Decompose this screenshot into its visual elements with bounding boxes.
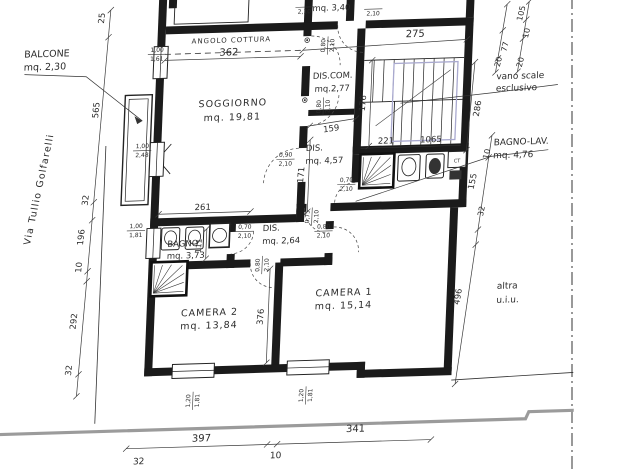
svg-text:0,90: 0,90	[279, 152, 293, 159]
svg-text:esclusivo: esclusivo	[496, 83, 538, 94]
svg-text:171: 171	[296, 167, 307, 183]
dim-10-left: 10	[74, 262, 85, 273]
dim-376: 376	[255, 309, 266, 325]
svg-text:mq. 4,57: mq. 4,57	[305, 156, 343, 167]
svg-text:mq. 19,81: mq. 19,81	[203, 111, 261, 124]
svg-text:565: 565	[91, 102, 103, 119]
label-vano-scale-esclusivo: vano scaleesclusivo	[496, 71, 545, 94]
washbasin-icon	[397, 155, 420, 182]
svg-text:DIS.: DIS.	[263, 224, 281, 235]
dim-292: 292	[69, 313, 81, 330]
svg-text:CAMERA 1: CAMERA 1	[315, 287, 372, 300]
svg-text:0,70: 0,70	[340, 177, 354, 184]
svg-text:196: 196	[76, 229, 88, 246]
dim-176: 176	[358, 95, 369, 111]
dim-77: 77	[499, 41, 510, 53]
svg-text:0,75: 0,75	[304, 210, 312, 224]
svg-text:2,10: 2,10	[339, 186, 353, 193]
fixtures-bagno-lav	[397, 151, 466, 181]
svg-text:CAMERA 2: CAMERA 2	[181, 307, 238, 320]
dim-10-bottom: 10	[270, 451, 282, 461]
svg-text:25: 25	[97, 13, 108, 24]
svg-text:mq.2,77: mq.2,77	[314, 84, 350, 95]
dim-10-topright: 10	[521, 27, 532, 39]
upper-room-outline	[174, 0, 249, 24]
svg-text:1065: 1065	[420, 135, 442, 146]
label-bagno-lav: BAGNO-LAV.mq. 4,76	[493, 137, 549, 162]
dim-32-left-lower: 32	[64, 365, 75, 376]
lot-line-southeast	[451, 372, 573, 380]
svg-text:BALCONE: BALCONE	[24, 48, 70, 60]
svg-text:10: 10	[74, 262, 85, 273]
svg-text:2,10: 2,10	[298, 8, 312, 15]
svg-text:20: 20	[515, 56, 526, 68]
svg-text:mq. 2,30: mq. 2,30	[23, 61, 66, 73]
leader-balcone	[22, 71, 144, 125]
svg-text:2,48: 2,48	[135, 152, 149, 159]
dim-362: 362	[219, 47, 238, 59]
svg-text:397: 397	[192, 433, 211, 445]
svg-text:221: 221	[378, 136, 395, 146]
svg-text:261: 261	[194, 203, 211, 213]
dim-275: 275	[405, 29, 424, 41]
label-balcone: BALCONEmq. 2,30	[23, 48, 69, 73]
dim-171: 171	[296, 167, 307, 183]
svg-text:341: 341	[346, 424, 365, 436]
dim-32-right: 32	[476, 205, 487, 216]
opening-210-a: 2,10	[295, 7, 314, 16]
dim-341: 341	[346, 424, 365, 436]
svg-text:DIS.: DIS.	[306, 143, 324, 154]
svg-text:10: 10	[481, 148, 492, 160]
svg-text:286: 286	[472, 100, 485, 117]
floor-plan-page: BALCONEmq. 2,30Via Tullio Golfarelli2556…	[0, 0, 620, 473]
svg-text:2,10: 2,10	[238, 233, 252, 240]
svg-text:CT: CT	[454, 158, 462, 164]
svg-text:32: 32	[81, 195, 92, 206]
svg-text:1,81: 1,81	[194, 394, 202, 408]
svg-text:0,80: 0,80	[254, 258, 262, 272]
svg-text:altra: altra	[497, 281, 518, 292]
window-camera1	[287, 360, 330, 375]
svg-text:Via Tullio Golfarelli: Via Tullio Golfarelli	[22, 133, 57, 246]
svg-text:u.i.u.: u.i.u.	[496, 295, 519, 306]
svg-text:362: 362	[219, 47, 238, 59]
svg-text:vano scale: vano scale	[496, 71, 545, 82]
opening-210-b: 2,10	[364, 9, 383, 18]
svg-text:2,10: 2,10	[366, 10, 380, 17]
dim-10-right: 10	[481, 148, 492, 160]
svg-text:1,20: 1,20	[298, 389, 306, 403]
dim-32-bottom: 32	[133, 457, 145, 467]
svg-text:32: 32	[133, 457, 145, 467]
svg-text:mq. 15,14: mq. 15,14	[315, 300, 373, 313]
svg-text:105: 105	[515, 5, 527, 22]
window-balcony-door	[149, 142, 164, 176]
dim-496: 496	[452, 288, 465, 305]
svg-text:176: 176	[358, 95, 369, 111]
svg-text:496: 496	[452, 288, 465, 305]
street-edge-gray-line	[0, 410, 574, 434]
dim-286: 286	[472, 100, 485, 117]
dim-1065: 1065	[420, 135, 442, 146]
dim-20-a: 20	[493, 56, 504, 68]
dim-397: 397	[192, 433, 211, 445]
svg-text:1,00: 1,00	[150, 47, 164, 54]
window-bagno	[146, 228, 161, 258]
dim-111: 111	[194, 238, 204, 253]
opening-100-181: 1,001,81	[127, 223, 146, 240]
label-ct: CT	[454, 158, 462, 164]
shower-bagno-lav	[359, 153, 394, 188]
svg-text:0,80: 0,80	[317, 223, 331, 230]
dim-20-b: 20	[515, 56, 526, 68]
svg-text:mq. 13,84: mq. 13,84	[180, 320, 238, 333]
svg-text:2,10: 2,10	[313, 210, 321, 224]
dim-261: 261	[194, 203, 211, 213]
svg-text:77: 77	[499, 41, 510, 53]
dim-196: 196	[76, 229, 88, 246]
svg-text:292: 292	[69, 313, 81, 330]
opening-120-181-camera2: 1,201,81	[185, 391, 202, 410]
svg-text:1,00: 1,00	[129, 223, 143, 230]
svg-text:155: 155	[467, 173, 480, 190]
svg-text:2,10: 2,10	[317, 232, 331, 239]
svg-text:20: 20	[493, 56, 504, 68]
label-street-via-tullio-golfarelli: Via Tullio Golfarelli	[22, 133, 57, 246]
svg-text:1,61: 1,61	[150, 56, 164, 63]
svg-text:1,20: 1,20	[185, 394, 193, 408]
window-camera2	[172, 363, 215, 378]
svg-text:1,81: 1,81	[129, 232, 143, 239]
svg-text:DIS.COM.: DIS.COM.	[313, 71, 353, 82]
dim-105: 105	[515, 5, 527, 22]
svg-text:0,80: 0,80	[315, 100, 323, 114]
street-boundary-line	[95, 146, 106, 424]
svg-text:mq. 2,64: mq. 2,64	[262, 236, 300, 247]
svg-text:SOGGIORNO: SOGGIORNO	[198, 97, 267, 110]
svg-text:2,10: 2,10	[329, 38, 337, 52]
svg-text:376: 376	[255, 309, 266, 325]
svg-text:0,70: 0,70	[238, 224, 252, 231]
svg-text:10: 10	[521, 27, 532, 39]
svg-text:0,80: 0,80	[320, 39, 328, 53]
floor-plan-drawing: BALCONEmq. 2,30Via Tullio Golfarelli2556…	[0, 0, 620, 473]
svg-text:mq. 4,76: mq. 4,76	[493, 150, 534, 161]
dim-155: 155	[467, 173, 480, 190]
label-altra-uiu: altrau.i.u.	[496, 281, 519, 306]
svg-text:10: 10	[270, 451, 282, 461]
dim-565: 565	[91, 102, 103, 119]
svg-text:111: 111	[194, 238, 204, 253]
svg-text:mq. 3,40: mq. 3,40	[312, 3, 350, 14]
svg-text:2,10: 2,10	[263, 258, 271, 272]
washer-icon	[449, 170, 461, 179]
svg-text:32: 32	[64, 365, 75, 376]
svg-text:1,00: 1,00	[135, 143, 149, 150]
dim-25: 25	[97, 13, 108, 24]
svg-text:BAGNO-LAV.: BAGNO-LAV.	[493, 137, 548, 149]
svg-text:32: 32	[476, 205, 487, 216]
dim-221: 221	[378, 136, 395, 146]
svg-text:2,10: 2,10	[278, 161, 292, 168]
svg-text:1,81: 1,81	[307, 388, 315, 402]
opening-120-181-camera1: 1,201,81	[298, 386, 315, 405]
dim-32-left-upper: 32	[81, 195, 92, 206]
svg-text:2,10: 2,10	[324, 99, 332, 113]
label-mq-340: mq. 3,40	[312, 3, 350, 14]
shower-bagno	[150, 261, 187, 296]
svg-text:275: 275	[405, 29, 424, 41]
